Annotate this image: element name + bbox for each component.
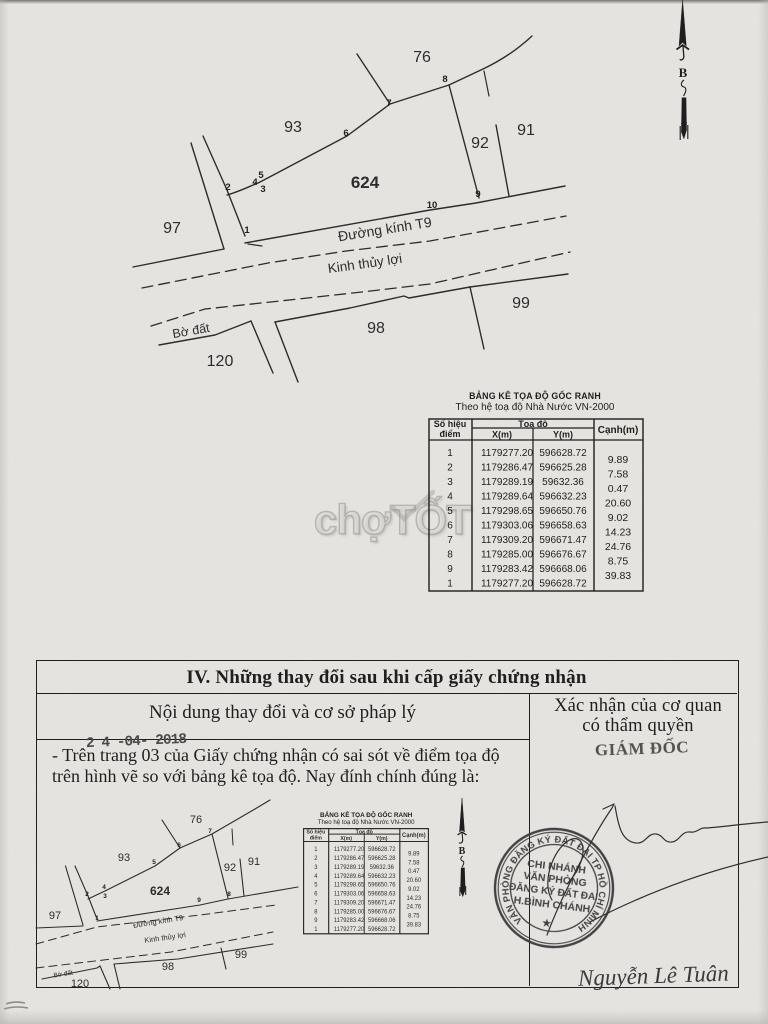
svg-text:1179309.20: 1179309.20: [334, 900, 365, 906]
svg-text:1179283.42: 1179283.42: [481, 564, 534, 575]
svg-text:596658.63: 596658.63: [368, 891, 396, 897]
svg-text:Số hiệu: Số hiệu: [306, 828, 325, 835]
svg-text:1179289.64: 1179289.64: [334, 874, 365, 880]
svg-text:20.60: 20.60: [605, 498, 631, 510]
svg-text:6: 6: [343, 128, 348, 139]
svg-text:596676.67: 596676.67: [368, 909, 396, 915]
svg-text:59632.36: 59632.36: [370, 865, 395, 871]
svg-text:5: 5: [447, 506, 453, 517]
svg-text:93: 93: [118, 852, 130, 864]
svg-text:7: 7: [314, 900, 318, 906]
svg-text:596625.28: 596625.28: [539, 463, 587, 474]
svg-text:Đường kính T9: Đường kính T9: [132, 913, 183, 930]
svg-text:596671.47: 596671.47: [539, 535, 587, 546]
svg-text:4: 4: [314, 874, 318, 880]
svg-text:596658.63: 596658.63: [539, 521, 587, 532]
svg-text:0.47: 0.47: [408, 869, 420, 875]
svg-text:Cạnh(m): Cạnh(m): [402, 833, 426, 839]
svg-text:99: 99: [512, 295, 530, 312]
svg-text:1179286.47: 1179286.47: [481, 463, 534, 474]
svg-text:9.89: 9.89: [408, 851, 420, 857]
svg-text:14.23: 14.23: [605, 527, 631, 539]
svg-text:1179277.20: 1179277.20: [481, 448, 534, 459]
svg-text:7: 7: [447, 535, 453, 546]
svg-text:9.02: 9.02: [608, 512, 629, 524]
svg-text:6: 6: [447, 521, 453, 532]
svg-text:624: 624: [150, 884, 170, 898]
svg-text:9.02: 9.02: [408, 887, 420, 893]
svg-text:9: 9: [447, 564, 453, 575]
svg-text:1: 1: [314, 847, 318, 853]
svg-text:1179309.20: 1179309.20: [481, 535, 534, 546]
svg-text:596668.06: 596668.06: [539, 564, 587, 575]
svg-text:120: 120: [71, 978, 89, 990]
svg-text:3: 3: [447, 477, 453, 488]
svg-text:1179303.06: 1179303.06: [481, 521, 534, 532]
svg-text:8.75: 8.75: [608, 556, 629, 568]
svg-text:8: 8: [442, 74, 447, 85]
svg-text:1179286.47: 1179286.47: [334, 856, 365, 862]
svg-text:97: 97: [49, 910, 61, 922]
svg-text:596650.76: 596650.76: [539, 506, 587, 517]
svg-text:9: 9: [197, 897, 201, 904]
svg-text:596676.67: 596676.67: [539, 550, 587, 561]
svg-text:X(m): X(m): [492, 430, 512, 440]
svg-text:4: 4: [102, 884, 106, 891]
svg-text:91: 91: [248, 856, 260, 868]
svg-text:1179285.00: 1179285.00: [334, 909, 365, 915]
svg-text:1179277.20: 1179277.20: [334, 847, 365, 853]
svg-text:1179277.20: 1179277.20: [481, 579, 534, 590]
svg-text:Cạnh(m): Cạnh(m): [598, 425, 639, 436]
svg-text:3: 3: [314, 865, 318, 871]
svg-text:1179289.64: 1179289.64: [481, 492, 534, 503]
svg-text:5: 5: [152, 859, 156, 866]
svg-text:2: 2: [314, 856, 318, 862]
svg-text:Tọa độ: Tọa độ: [356, 829, 374, 835]
svg-text:điểm: điểm: [439, 429, 460, 439]
svg-text:X(m): X(m): [340, 836, 352, 842]
svg-text:596625.28: 596625.28: [368, 856, 396, 862]
svg-text:92: 92: [471, 135, 489, 152]
svg-text:8: 8: [314, 909, 318, 915]
svg-text:91: 91: [517, 122, 535, 139]
svg-text:1: 1: [447, 448, 453, 459]
svg-text:5: 5: [314, 883, 318, 889]
svg-text:596668.06: 596668.06: [368, 918, 396, 924]
svg-text:3: 3: [103, 893, 107, 900]
svg-text:1: 1: [447, 579, 453, 590]
svg-text:điểm: điểm: [310, 835, 322, 842]
svg-text:596632.23: 596632.23: [539, 492, 587, 503]
svg-text:59632.36: 59632.36: [542, 477, 584, 488]
svg-text:7.58: 7.58: [608, 469, 629, 481]
svg-text:7: 7: [386, 98, 391, 109]
svg-text:98: 98: [162, 961, 174, 973]
svg-text:1179289.19: 1179289.19: [481, 477, 534, 488]
svg-text:7.58: 7.58: [408, 860, 420, 866]
svg-text:97: 97: [163, 220, 181, 237]
svg-text:596632.23: 596632.23: [368, 874, 396, 880]
svg-text:14.23: 14.23: [407, 896, 422, 902]
svg-text:596628.72: 596628.72: [539, 448, 587, 459]
svg-text:1179283.42: 1179283.42: [334, 918, 365, 924]
svg-text:10: 10: [427, 200, 438, 211]
svg-text:5: 5: [258, 170, 264, 181]
svg-text:1179303.06: 1179303.06: [334, 891, 365, 897]
svg-text:93: 93: [284, 119, 302, 136]
svg-text:624: 624: [351, 173, 380, 192]
svg-text:24.76: 24.76: [407, 905, 422, 911]
svg-text:Số hiệu: Số hiệu: [434, 419, 467, 429]
svg-text:596628.72: 596628.72: [368, 927, 396, 933]
svg-text:6: 6: [314, 891, 318, 897]
svg-text:Tọa độ: Tọa độ: [518, 419, 548, 429]
svg-text:9: 9: [314, 918, 318, 924]
svg-text:B: B: [679, 65, 688, 80]
svg-text:8.75: 8.75: [408, 913, 420, 919]
svg-text:1179285.00: 1179285.00: [481, 550, 534, 561]
svg-text:Y(m): Y(m): [376, 836, 388, 842]
svg-text:2: 2: [85, 891, 89, 898]
svg-text:9: 9: [475, 189, 480, 200]
svg-text:596628.72: 596628.72: [539, 579, 587, 590]
svg-text:7: 7: [208, 828, 212, 835]
svg-text:596628.72: 596628.72: [368, 847, 396, 853]
svg-text:1179298.65: 1179298.65: [481, 506, 534, 517]
svg-text:Kinh thủy lợi: Kinh thủy lợi: [144, 930, 187, 945]
svg-text:120: 120: [207, 353, 234, 370]
svg-text:Kinh thủy lợi: Kinh thủy lợi: [327, 251, 403, 276]
svg-text:1179289.19: 1179289.19: [334, 865, 365, 871]
svg-text:Y(m): Y(m): [553, 430, 573, 440]
svg-text:596671.47: 596671.47: [368, 900, 396, 906]
svg-text:2: 2: [225, 182, 230, 193]
svg-text:1: 1: [244, 225, 250, 236]
svg-text:76: 76: [413, 49, 431, 66]
svg-text:3: 3: [260, 184, 265, 195]
svg-text:92: 92: [224, 862, 236, 874]
svg-text:2: 2: [447, 463, 453, 474]
svg-text:98: 98: [367, 320, 385, 337]
svg-text:8: 8: [447, 550, 453, 561]
svg-text:1: 1: [95, 915, 99, 922]
svg-text:39.83: 39.83: [605, 570, 631, 582]
svg-text:1: 1: [314, 927, 318, 933]
svg-text:39.83: 39.83: [407, 922, 422, 928]
svg-text:9.89: 9.89: [608, 454, 629, 466]
svg-text:6: 6: [177, 842, 181, 849]
svg-text:20.60: 20.60: [407, 878, 422, 884]
svg-text:1179298.65: 1179298.65: [334, 883, 365, 889]
svg-text:0.47: 0.47: [608, 483, 629, 495]
svg-text:99: 99: [235, 949, 247, 961]
svg-text:8: 8: [227, 891, 231, 898]
svg-text:24.76: 24.76: [605, 541, 631, 553]
svg-text:596650.76: 596650.76: [368, 883, 396, 889]
svg-text:Bờ đất: Bờ đất: [171, 321, 211, 341]
svg-text:1179277.20: 1179277.20: [334, 927, 365, 933]
svg-text:76: 76: [190, 814, 202, 826]
svg-text:4: 4: [447, 492, 453, 503]
